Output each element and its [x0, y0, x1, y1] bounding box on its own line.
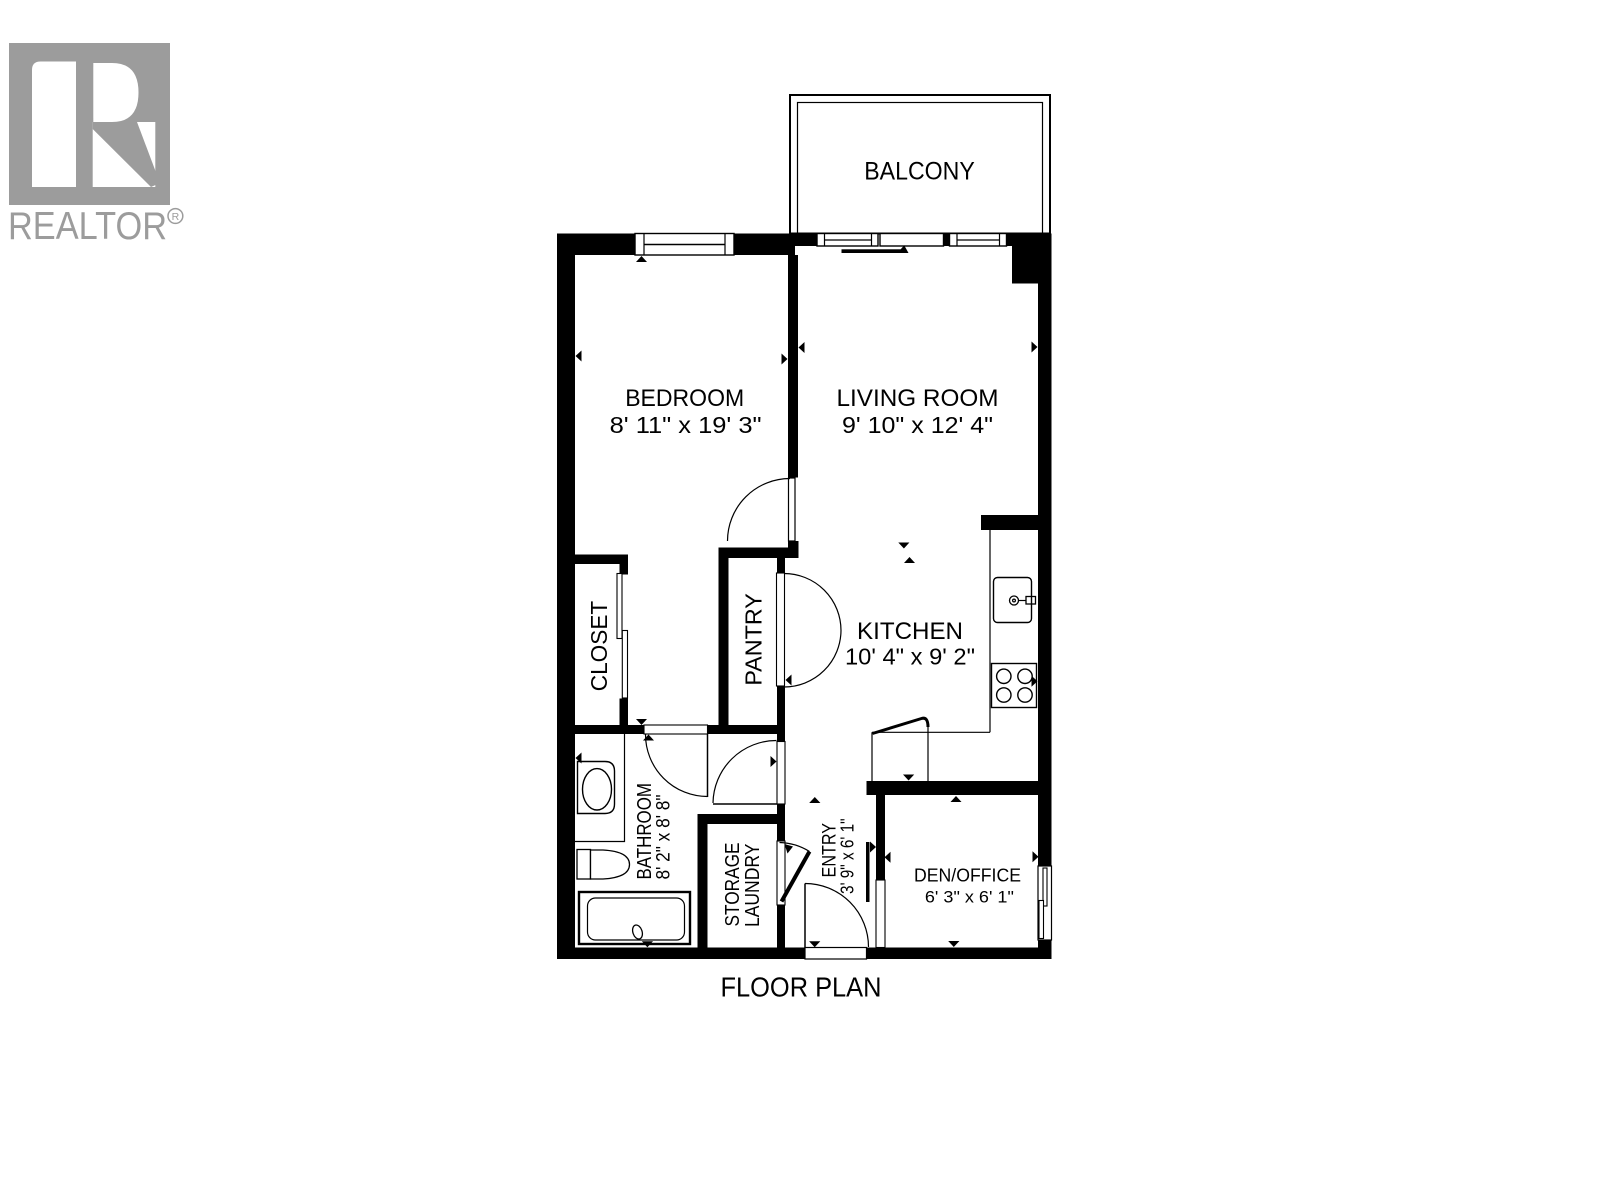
svg-text:LAUNDRY: LAUNDRY [742, 844, 764, 928]
svg-text:REALTOR: REALTOR [8, 205, 167, 248]
svg-text:BALCONY: BALCONY [864, 158, 975, 186]
svg-text:PANTRY: PANTRY [740, 593, 766, 686]
svg-text:9' 10" x 12' 4": 9' 10" x 12' 4" [842, 412, 993, 438]
svg-text:10' 4" x 9' 2": 10' 4" x 9' 2" [845, 643, 975, 669]
svg-text:CLOSET: CLOSET [586, 601, 612, 692]
svg-text:LIVING ROOM: LIVING ROOM [837, 385, 999, 412]
svg-text:STORAGE: STORAGE [722, 843, 744, 927]
svg-text:8' 11" x 19' 3": 8' 11" x 19' 3" [610, 412, 762, 438]
svg-text:DEN/OFFICE: DEN/OFFICE [914, 865, 1021, 885]
svg-text:BEDROOM: BEDROOM [625, 385, 744, 412]
svg-text:3' 9" x 6' 1": 3' 9" x 6' 1" [838, 818, 858, 894]
svg-text:8' 2" x 8' 8": 8' 2" x 8' 8" [653, 794, 675, 879]
svg-text:R: R [172, 211, 180, 223]
svg-text:6' 3" x 6' 1": 6' 3" x 6' 1" [925, 888, 1014, 907]
svg-text:KITCHEN: KITCHEN [857, 618, 963, 645]
svg-text:FLOOR PLAN: FLOOR PLAN [721, 971, 882, 1002]
